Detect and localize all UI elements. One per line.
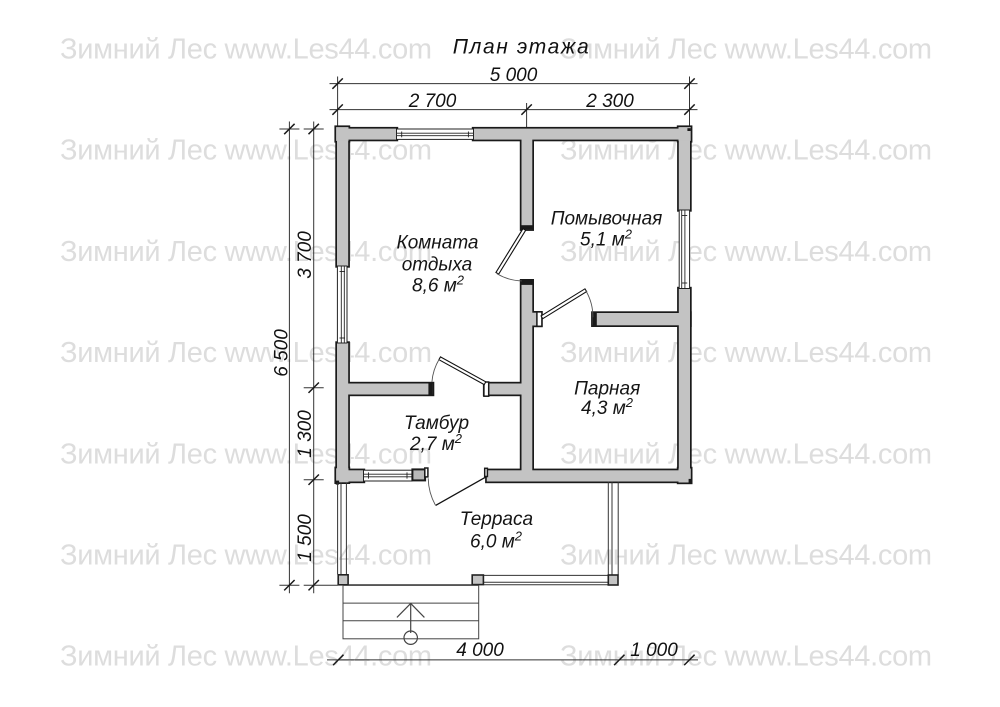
svg-text:Зимний Лес www.Les44.com: Зимний Лес www.Les44.com bbox=[60, 236, 432, 268]
svg-text:4 000: 4 000 bbox=[456, 640, 504, 661]
svg-text:Помывочная: Помывочная bbox=[551, 209, 663, 230]
svg-text:1 000: 1 000 bbox=[630, 640, 678, 661]
svg-text:2,7 м2: 2,7 м2 bbox=[409, 431, 463, 455]
svg-text:Зимний Лес www.Les44.com: Зимний Лес www.Les44.com bbox=[560, 438, 932, 470]
svg-text:Зимний Лес www.Les44.com: Зимний Лес www.Les44.com bbox=[60, 34, 432, 66]
svg-text:5 000: 5 000 bbox=[490, 65, 538, 86]
svg-text:1 300: 1 300 bbox=[295, 410, 316, 458]
svg-text:Комната: Комната bbox=[397, 233, 479, 254]
svg-text:Зимний Лес www.Les44.com: Зимний Лес www.Les44.com bbox=[560, 337, 932, 369]
svg-text:Терраса: Терраса bbox=[460, 509, 533, 530]
svg-text:Зимний Лес www.Les44.com: Зимний Лес www.Les44.com bbox=[60, 337, 432, 369]
svg-text:Зимний Лес www.Les44.com: Зимний Лес www.Les44.com bbox=[560, 34, 932, 66]
svg-text:Зимний Лес www.Les44.com: Зимний Лес www.Les44.com bbox=[560, 641, 932, 673]
svg-text:Зимний Лес www.Les44.com: Зимний Лес www.Les44.com bbox=[560, 540, 932, 572]
svg-text:Зимний Лес www.Les44.com: Зимний Лес www.Les44.com bbox=[60, 540, 432, 572]
svg-text:Зимний Лес www.Les44.com: Зимний Лес www.Les44.com bbox=[60, 641, 432, 673]
svg-text:2 700: 2 700 bbox=[408, 91, 457, 112]
svg-text:2 300: 2 300 bbox=[585, 91, 634, 112]
svg-text:План этажа: План этажа bbox=[453, 35, 591, 58]
svg-text:Зимний Лес www.Les44.com: Зимний Лес www.Les44.com bbox=[60, 438, 432, 470]
svg-text:1 500: 1 500 bbox=[295, 514, 316, 562]
svg-text:6 500: 6 500 bbox=[272, 329, 293, 377]
svg-text:3 700: 3 700 bbox=[295, 231, 316, 279]
